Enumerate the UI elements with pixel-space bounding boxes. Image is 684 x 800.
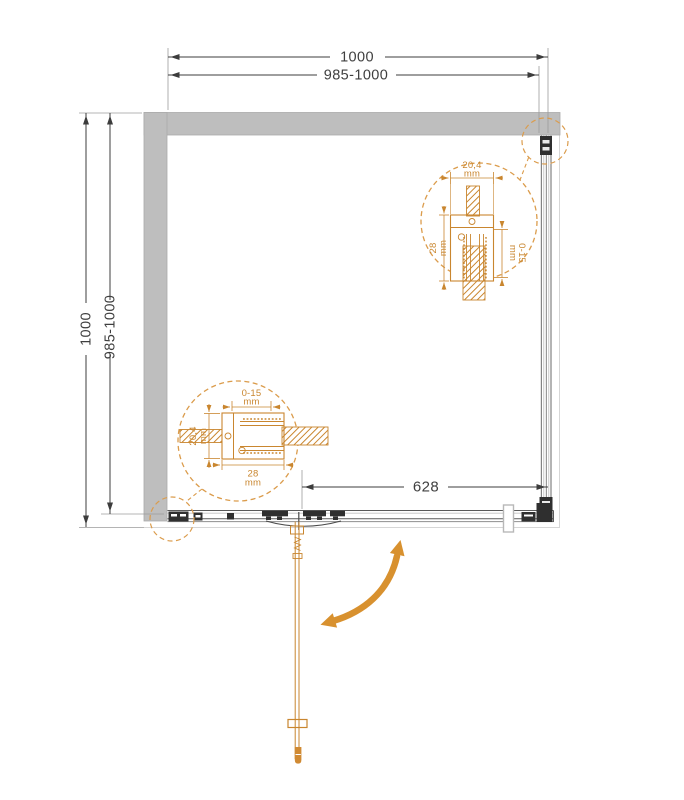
detail-adjust-unit: mm — [507, 245, 518, 261]
fixed-glass-panel-right — [540, 136, 553, 516]
rail-bracket — [504, 505, 514, 532]
detail-width-unit: mm — [198, 428, 209, 444]
wall-anchor-hatched — [467, 186, 480, 216]
corner-connector — [537, 503, 553, 522]
rail-end-block — [522, 512, 536, 522]
detail-depth-unit: mm — [438, 240, 449, 256]
detail-width-unit: mm — [464, 169, 480, 180]
wall-left — [144, 113, 167, 522]
drawing-canvas: 1000 985-1000 1000 985-1000 628 — [0, 0, 684, 800]
shower-enclosure-technical-drawing: 1000 985-1000 1000 985-1000 628 — [0, 0, 684, 800]
dim-entry-width-label: 628 — [413, 479, 439, 496]
rail-stop — [227, 513, 234, 520]
dim-left-total-label: 1000 — [79, 312, 95, 346]
wall-top — [144, 113, 560, 136]
detail-adjust-unit: mm — [243, 397, 259, 408]
dim-top-total-label: 1000 — [340, 50, 374, 66]
glass-pane-hatched — [282, 427, 328, 445]
dim-top-range-label: 985-1000 — [324, 68, 388, 84]
door-end-cap — [295, 747, 302, 764]
panel-top-wall-profile — [540, 136, 552, 155]
dim-left-range-label: 985-1000 — [103, 295, 119, 359]
detail-depth-unit: mm — [245, 478, 261, 489]
